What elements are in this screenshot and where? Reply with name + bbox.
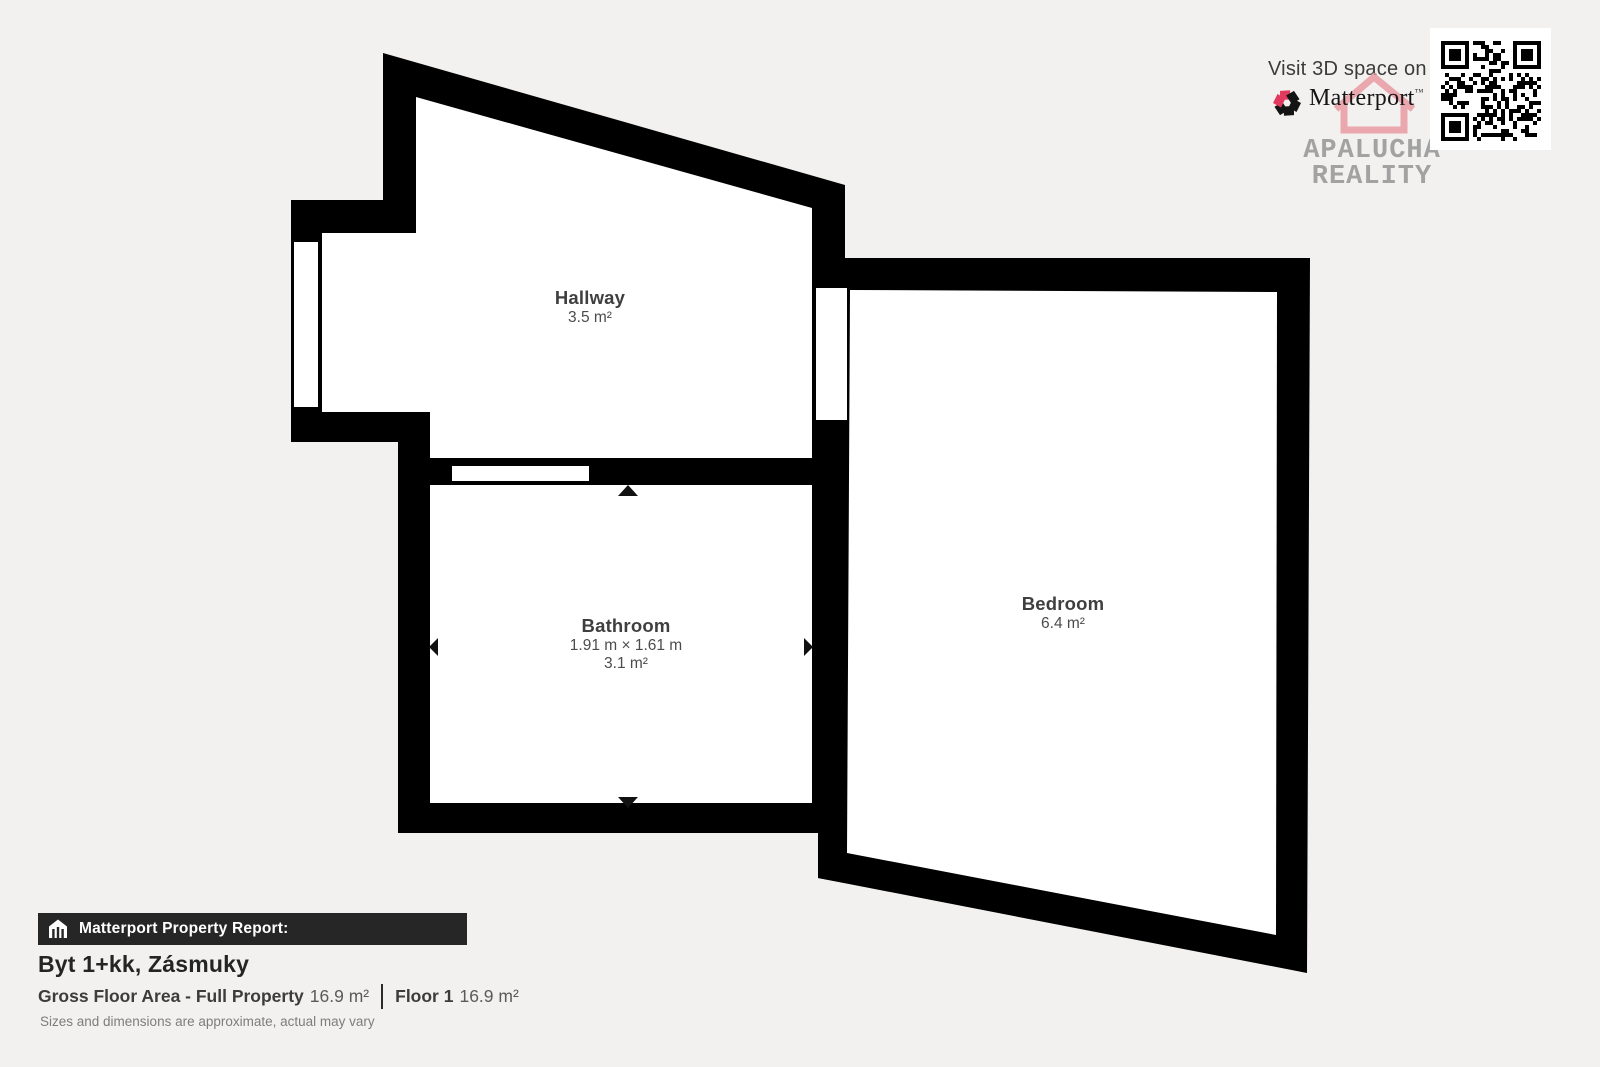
- matterport-logo-icon: [1271, 86, 1303, 118]
- house-icon: [48, 919, 68, 939]
- floorplan-page: { "branding": { "visit_text": "Visit 3D …: [0, 0, 1600, 1067]
- bathroom-door-opening: [452, 466, 589, 481]
- bedroom-label: Bedroom 6.4 m²: [1022, 593, 1105, 633]
- property-title: Byt 1+kk, Zásmuky: [38, 951, 249, 978]
- matterport-logotype-text: Matterport: [1309, 85, 1415, 111]
- watermark-line1: APALUCHA: [1303, 138, 1441, 164]
- disclaimer-text: Sizes and dimensions are approximate, ac…: [40, 1014, 375, 1029]
- floor-value: 16.9 m²: [459, 986, 518, 1007]
- room-name: Bathroom: [570, 615, 682, 637]
- area-summary-line: Gross Floor Area - Full Property 16.9 m²…: [38, 984, 519, 1009]
- gross-floor-area-label: Gross Floor Area - Full Property: [38, 986, 304, 1007]
- apalucha-reality-watermark: APALUCHA REALITY: [1303, 138, 1441, 190]
- separator-bar: [381, 984, 383, 1009]
- trademark-symbol: ™: [1415, 87, 1424, 97]
- bedroom-door-opening: [816, 288, 847, 420]
- watermark-line2: REALITY: [1303, 164, 1441, 190]
- gross-floor-area-value: 16.9 m²: [310, 986, 369, 1007]
- report-bar-label: Matterport Property Report:: [79, 920, 289, 938]
- room-area: 3.5 m²: [555, 309, 625, 327]
- qr-code-pattern: [1441, 41, 1541, 141]
- hallway-label: Hallway 3.5 m²: [555, 287, 625, 327]
- room-area: 3.1 m²: [570, 655, 682, 673]
- qr-code: [1430, 28, 1551, 150]
- bathroom-label: Bathroom 1.91 m × 1.61 m 3.1 m²: [570, 615, 682, 672]
- floor-label: Floor 1: [395, 986, 453, 1007]
- room-name: Hallway: [555, 287, 625, 309]
- room-dimensions: 1.91 m × 1.61 m: [570, 637, 682, 655]
- report-header-bar: Matterport Property Report:: [38, 913, 467, 945]
- room-name: Bedroom: [1022, 593, 1105, 615]
- matterport-logotype: Matterport™: [1309, 85, 1424, 112]
- room-area: 6.4 m²: [1022, 615, 1105, 633]
- hallway-window: [294, 242, 318, 407]
